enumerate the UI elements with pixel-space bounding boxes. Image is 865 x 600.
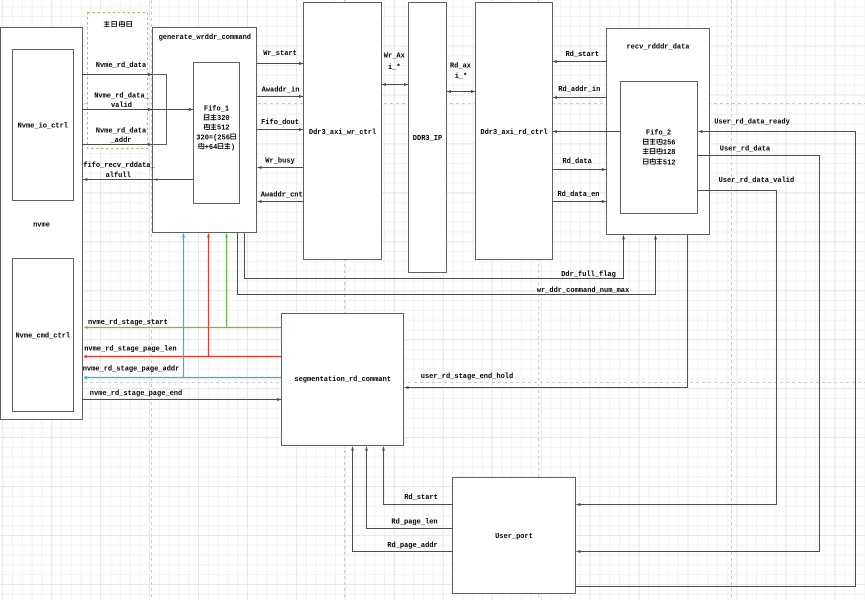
svg-text:Awaddr_cnt: Awaddr_cnt: [261, 192, 303, 200]
svg-text:i_*: i_*: [455, 73, 468, 81]
svg-text:Rd_data_en: Rd_data_en: [557, 191, 599, 199]
svg-text:Nvme_cmd_ctrl: Nvme_cmd_ctrl: [15, 333, 70, 341]
svg-text:320=(256: 320=(256: [196, 134, 230, 142]
svg-text:): ): [231, 144, 235, 152]
svg-text:320: 320: [217, 115, 230, 123]
svg-text:Nvme_rd_data: Nvme_rd_data: [96, 128, 147, 136]
svg-text:256: 256: [663, 140, 676, 148]
svg-text:Rd_data: Rd_data: [562, 158, 592, 166]
svg-text:Wr_start: Wr_start: [263, 50, 297, 58]
svg-text:fifo_recv_rddata_: fifo_recv_rddata_: [83, 162, 155, 170]
svg-text:Rd_page_addr: Rd_page_addr: [387, 542, 437, 550]
svg-text:nvme_rd_stage_page_addr: nvme_rd_stage_page_addr: [83, 365, 180, 373]
svg-text:wr_ddr_command_num_max: wr_ddr_command_num_max: [537, 287, 630, 295]
svg-text:user_rd_stage_end_hold: user_rd_stage_end_hold: [421, 373, 513, 381]
svg-text:Rd_addr_in: Rd_addr_in: [558, 86, 600, 94]
svg-text:Wr_Ax: Wr_Ax: [384, 53, 406, 61]
svg-text:Wr_busy: Wr_busy: [265, 158, 295, 166]
svg-text:_addr: _addr: [109, 137, 131, 145]
svg-text:Rd_start: Rd_start: [565, 51, 599, 59]
svg-text:Fifo_dout: Fifo_dout: [261, 119, 299, 127]
svg-text:i_*: i_*: [388, 64, 401, 72]
svg-text:512: 512: [217, 125, 230, 133]
svg-text:Fifo_1: Fifo_1: [204, 106, 229, 114]
svg-text:Fifo_2: Fifo_2: [646, 129, 671, 137]
svg-text:Ddr3_axi_rd_ctrl: Ddr3_axi_rd_ctrl: [480, 129, 547, 137]
svg-text:generate_wrddr_command: generate_wrddr_command: [159, 34, 251, 42]
svg-text:+64: +64: [205, 144, 218, 152]
svg-text:valid: valid: [111, 102, 132, 110]
svg-text:Nvme_rd_data_: Nvme_rd_data_: [94, 93, 149, 101]
svg-text:Nvme_io_ctrl: Nvme_io_ctrl: [18, 123, 68, 131]
svg-text:Awaddr_in: Awaddr_in: [262, 87, 300, 95]
svg-text:DDR3_IP: DDR3_IP: [413, 135, 442, 143]
svg-text:Ddr3_axi_wr_ctrl: Ddr3_axi_wr_ctrl: [309, 129, 376, 137]
svg-text:Rd_ax: Rd_ax: [450, 62, 472, 70]
svg-text:User_rd_data_valid: User_rd_data_valid: [719, 177, 795, 185]
svg-text:Rd_page_len: Rd_page_len: [391, 519, 437, 527]
svg-text:128: 128: [663, 149, 676, 157]
svg-text:nvme_rd_stage_page_end: nvme_rd_stage_page_end: [90, 390, 182, 398]
svg-text:User_rd_data: User_rd_data: [720, 146, 771, 154]
svg-text:Ddr_full_flag: Ddr_full_flag: [561, 271, 616, 279]
svg-text:Nvme_rd_data: Nvme_rd_data: [96, 62, 147, 70]
svg-text:User_port: User_port: [495, 533, 533, 541]
svg-text:segmentation_rd_commant: segmentation_rd_commant: [294, 376, 391, 384]
svg-text:nvme_rd_stage_start: nvme_rd_stage_start: [88, 319, 168, 327]
svg-text:nvme_rd_stage_page_len: nvme_rd_stage_page_len: [84, 345, 176, 353]
svg-text:recv_rdddr_data: recv_rdddr_data: [626, 44, 690, 52]
svg-text:512: 512: [663, 159, 676, 167]
svg-text:Rd_start: Rd_start: [404, 494, 438, 502]
svg-text:alfull: alfull: [106, 172, 131, 180]
svg-text:User_rd_data_ready: User_rd_data_ready: [714, 119, 790, 127]
svg-text:nvme: nvme: [33, 222, 50, 230]
